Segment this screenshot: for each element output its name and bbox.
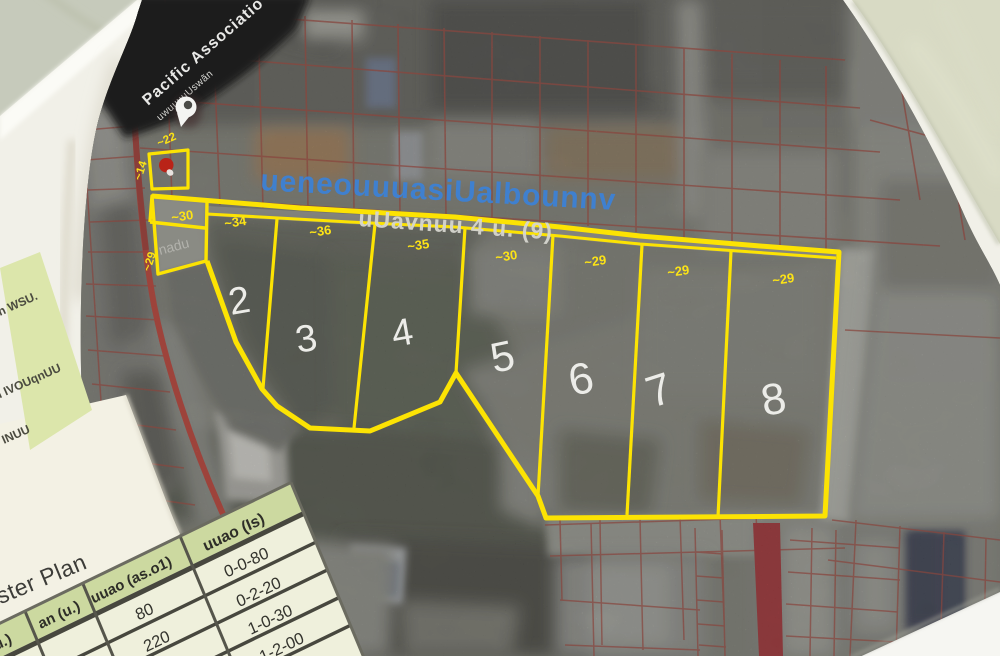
svg-text:~30: ~30 bbox=[170, 207, 194, 225]
svg-text:~36: ~36 bbox=[308, 222, 332, 240]
svg-text:~30: ~30 bbox=[494, 247, 518, 265]
svg-text:~34: ~34 bbox=[223, 213, 248, 231]
svg-text:~29: ~29 bbox=[583, 252, 607, 270]
svg-text:~35: ~35 bbox=[406, 236, 430, 254]
svg-text:~29: ~29 bbox=[771, 270, 795, 288]
svg-text:~29: ~29 bbox=[666, 262, 690, 280]
